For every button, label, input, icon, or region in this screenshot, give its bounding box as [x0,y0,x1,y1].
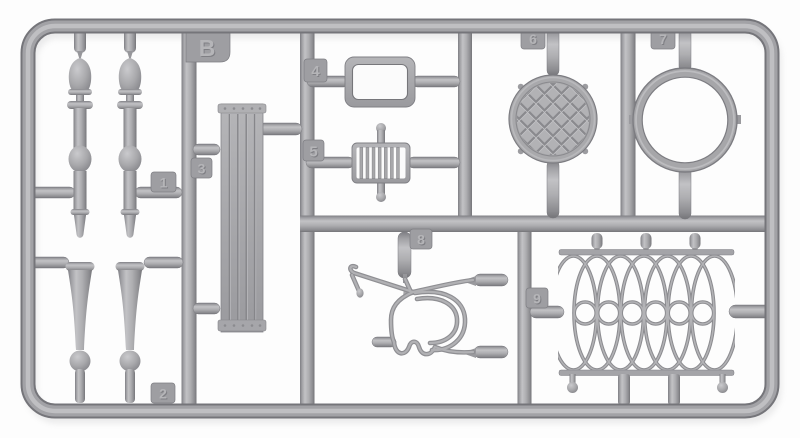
fence-bottom-rail [559,370,734,376]
gate-stub [679,166,691,219]
gate-stub [547,160,559,218]
grille-slats [360,148,400,179]
part-number-label-9: 9 [533,291,541,307]
gate-stub [412,76,460,87]
sprue-letter-label: B [199,35,216,61]
part-number-label-3: 3 [198,161,206,177]
grille-bottom-pin [376,192,386,202]
gate-stub [474,346,508,358]
gate-stub [474,274,508,286]
runner-vertical-1 [182,26,197,408]
gate-stub [679,28,691,72]
gate-stub [144,257,183,268]
gate-stub [398,232,411,278]
part-number-label-2: 2 [159,386,167,402]
part-number-label-7: 7 [659,31,667,47]
frame-opening [353,65,408,100]
gate-stub [193,303,220,314]
runner-vertical-5 [518,216,532,408]
part-number-label-8: 8 [417,232,425,248]
gate-stub [547,28,559,76]
part-number-label-6: 6 [529,31,537,47]
panel-body [221,104,263,332]
part-number-label-4: 4 [311,63,320,80]
gate-stub [258,123,302,135]
gate-stub [193,144,220,155]
runner-vertical-3 [458,26,472,224]
gate-stub [29,187,75,198]
runner-horizontal [300,216,770,233]
model-sprue-photo: B 1 2 3 4 5 6 7 8 9 [0,0,800,438]
part-number-label-1: 1 [160,175,168,191]
fence-top-rail [559,250,734,256]
chair-pendant-tip [356,288,363,297]
gate-stub [408,157,460,168]
part-number-label-5: 5 [309,144,317,161]
